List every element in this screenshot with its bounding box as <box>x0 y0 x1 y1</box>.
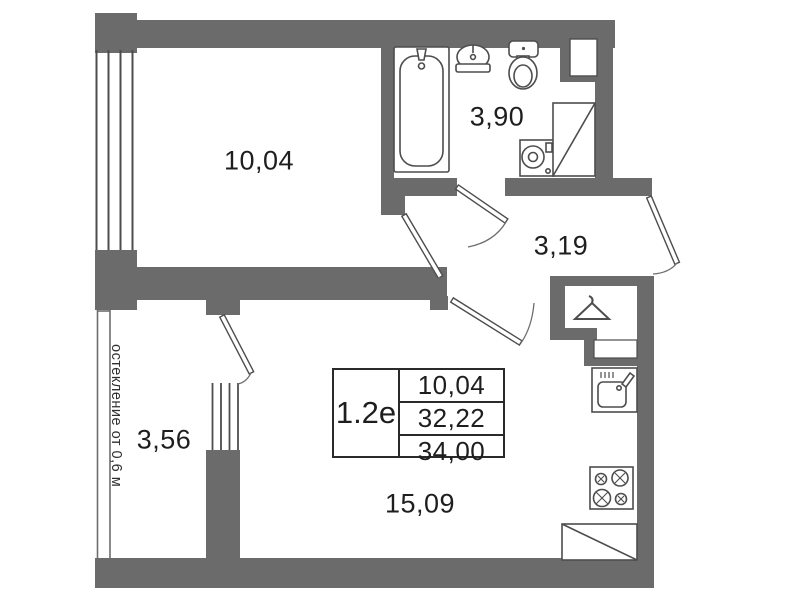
bath-sink-icon <box>456 45 490 72</box>
utility-shaft <box>594 340 637 358</box>
washing-machine-icon <box>520 140 554 176</box>
area-row-room: 10,04 <box>400 370 503 401</box>
fridge-icon <box>562 524 637 560</box>
diagonal-hatch-box <box>553 103 595 176</box>
hallway-area-label: 3,19 <box>534 231 589 262</box>
bathtub-icon <box>394 47 449 172</box>
floor-plan: 10,04 3,90 3,19 3,56 15,09 остекление от… <box>0 0 799 600</box>
glazing-note: остекление от 0,6 м <box>108 344 124 522</box>
area-row-living: 32,22 <box>400 401 503 434</box>
area-row-total: 34,00 <box>400 434 503 467</box>
stove-icon <box>590 467 633 509</box>
balcony-door <box>220 315 254 384</box>
wall-segment <box>95 267 447 300</box>
info-table: 1.2е 10,04 32,22 34,00 <box>332 368 505 458</box>
wall-segment <box>95 13 137 53</box>
area-rows: 10,04 32,22 34,00 <box>400 370 503 456</box>
toilet-icon <box>509 41 538 89</box>
bathroom-door <box>456 185 508 247</box>
bedroom-area-label: 10,04 <box>224 146 294 177</box>
balcony-area-label: 3,56 <box>137 425 192 456</box>
wall-segment <box>381 178 457 196</box>
hanger-icon <box>575 296 609 319</box>
wall-segment <box>637 276 654 568</box>
wall-segment <box>206 298 240 315</box>
kitchen-sink-icon <box>592 368 637 412</box>
living-kitchen-area-label: 15,09 <box>385 489 455 520</box>
wall-segment <box>206 450 240 560</box>
living-room-door <box>451 298 534 345</box>
bathroom-area-label: 3,90 <box>470 102 525 133</box>
wall-segment <box>430 296 448 310</box>
wall-segment <box>381 44 394 200</box>
bedroom-window <box>97 50 133 250</box>
walls <box>95 13 654 588</box>
balcony-window <box>213 383 239 450</box>
entry-door <box>647 196 680 274</box>
wall-segment <box>95 558 654 588</box>
wall-segment <box>381 196 405 215</box>
wall-segment <box>505 178 652 196</box>
vent-shaft <box>570 39 597 76</box>
unit-label: 1.2е <box>334 370 400 456</box>
